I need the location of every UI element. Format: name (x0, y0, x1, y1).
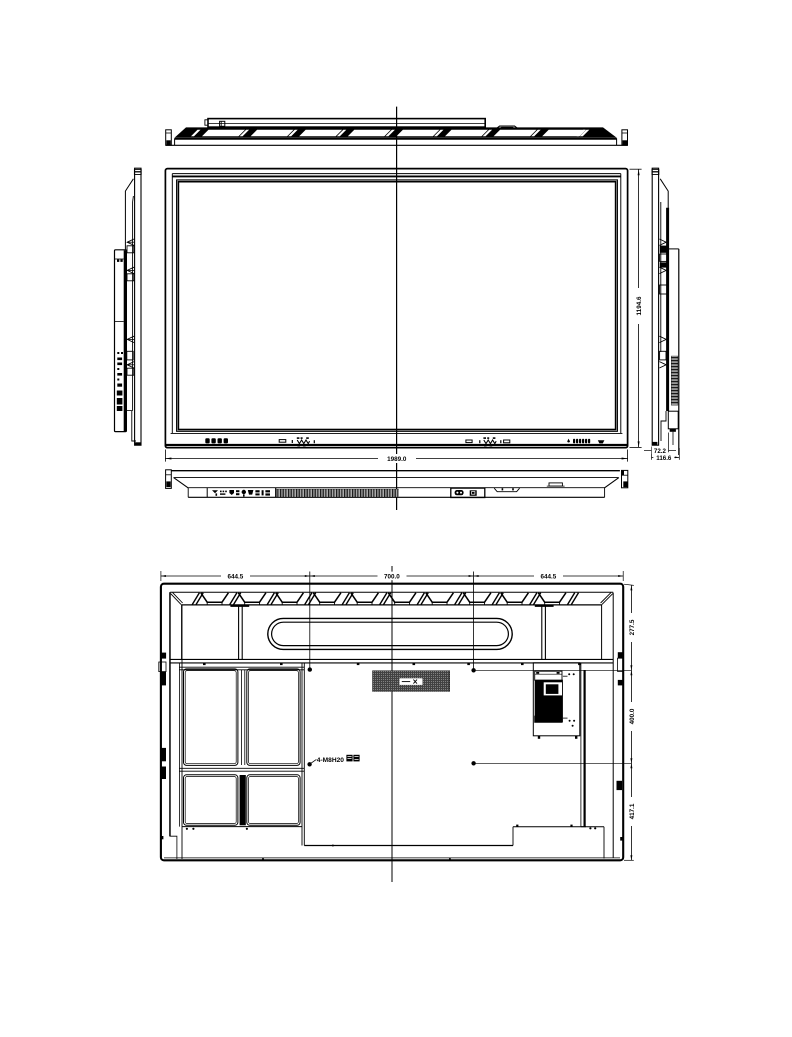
svg-text:700.0: 700.0 (384, 573, 400, 580)
svg-text:4-M8H20: 4-M8H20 (317, 757, 344, 764)
svg-text:644.5: 644.5 (541, 573, 557, 580)
svg-text:1989.0: 1989.0 (387, 456, 407, 463)
svg-text:417.1: 417.1 (629, 803, 636, 819)
svg-text:116.6: 116.6 (656, 455, 672, 462)
svg-text:277.5: 277.5 (629, 619, 636, 635)
svg-text:644.5: 644.5 (228, 573, 244, 580)
svg-text:400.0: 400.0 (629, 708, 636, 724)
svg-text:1194.6: 1194.6 (636, 296, 643, 315)
